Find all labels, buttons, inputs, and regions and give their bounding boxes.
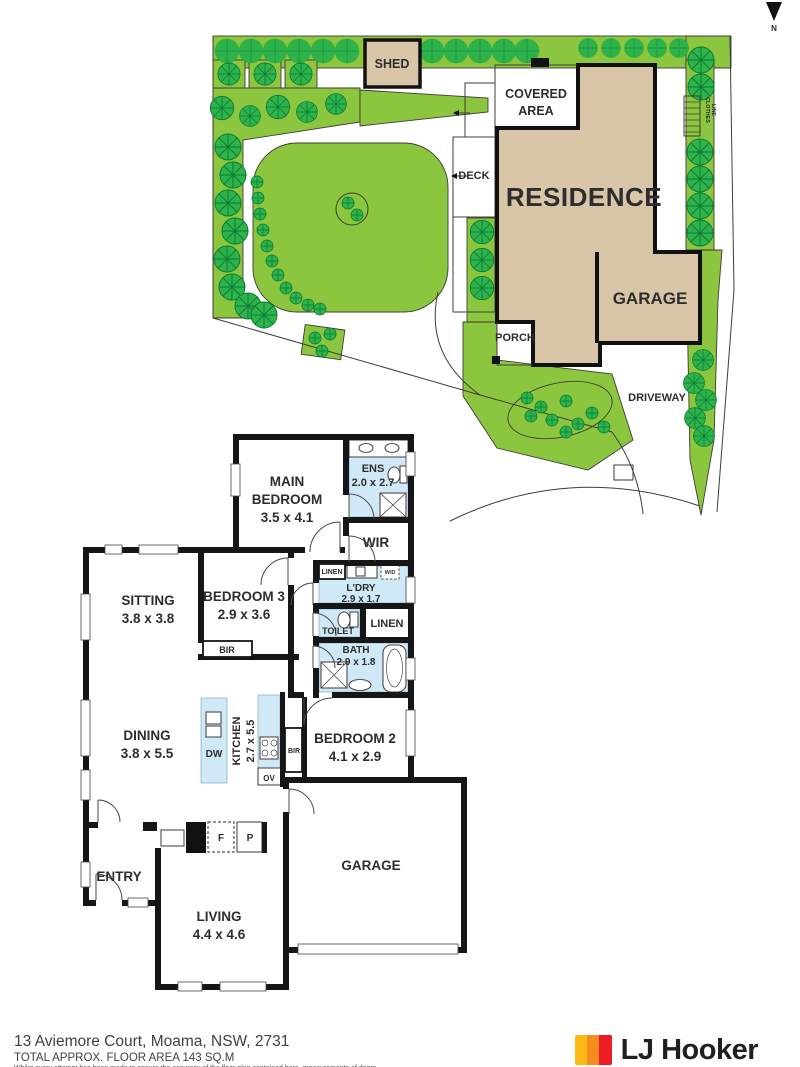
- north-label: N: [771, 24, 777, 33]
- property-address: 13 Aviemore Court, Moama, NSW, 2731: [14, 1033, 376, 1051]
- bath-dims: 2.9 x 1.8: [337, 657, 376, 668]
- residence-label: RESIDENCE: [506, 182, 662, 212]
- living-label: LIVING: [196, 909, 241, 924]
- bath-basin-icon: [349, 680, 371, 691]
- fireplace-icon: [186, 822, 206, 853]
- laundry-label: L'DRY: [346, 583, 376, 594]
- kitchen-sink-icon: [206, 712, 221, 724]
- bedroom2-dims: 4.1 x 2.9: [329, 749, 382, 764]
- covered-area-label-1: COVERED: [505, 87, 567, 101]
- footer: 13 Aviemore Court, Moama, NSW, 2731 TOTA…: [0, 1030, 800, 1067]
- clothes-line-label-2: LINE: [710, 104, 716, 117]
- main-bedroom-label-1: MAIN: [270, 474, 305, 489]
- brand-name: LJ Hooker: [621, 1035, 758, 1065]
- clothes-line-label-1: CLOTHES: [704, 97, 710, 123]
- entry-label: ENTRY: [96, 869, 141, 884]
- bedroom3-dims: 2.9 x 3.6: [218, 607, 271, 622]
- laundry-dims: 2.9 x 1.7: [342, 594, 381, 605]
- toilet-label: TOILET: [322, 626, 354, 636]
- driveway-label: DRIVEWAY: [628, 392, 686, 404]
- deck-label: DECK: [458, 170, 489, 182]
- dishwasher-label: DW: [206, 749, 223, 760]
- kitchen-dims: 2.7 x 5.5: [245, 720, 257, 763]
- covered-area-label-2: AREA: [518, 104, 553, 118]
- linen-hall-label: LINEN: [322, 569, 343, 576]
- kitchen-label: KITCHEN: [231, 717, 243, 766]
- cooktop-icon: [260, 737, 278, 759]
- ens-label: ENS: [362, 463, 385, 475]
- bir-bedroom3-label: BIR: [219, 645, 235, 655]
- wir-label: WIR: [363, 535, 389, 550]
- hall-cabinet: [161, 830, 184, 846]
- garage-label: GARAGE: [341, 858, 400, 873]
- dining-label: DINING: [123, 728, 170, 743]
- plan-canvas: N: [0, 0, 800, 1030]
- bedroom3-label: BEDROOM 3: [203, 589, 285, 604]
- shed-label: SHED: [375, 57, 410, 71]
- garage-door: [298, 944, 458, 954]
- site-garage-label: GARAGE: [613, 289, 688, 308]
- logo-stripes-icon: [575, 1035, 612, 1065]
- pantry-label: P: [247, 833, 254, 844]
- site-plan: CLOTHES LINE SHED COVERED AREA DECK RESI…: [210, 36, 734, 521]
- living-dims: 4.4 x 4.6: [193, 927, 246, 942]
- ens-shower-icon: [380, 493, 406, 517]
- fridge-label: F: [218, 833, 224, 844]
- floor-plan: MAIN BEDROOM 3.5 x 4.1 ENS 2.0 x 2.7 WIR…: [81, 434, 467, 991]
- bedroom2-label: BEDROOM 2: [314, 731, 396, 746]
- linen-label: LINEN: [371, 618, 404, 630]
- lj-hooker-logo: LJ Hooker: [575, 1035, 758, 1065]
- bathtub-icon: [383, 645, 406, 692]
- main-bedroom-dims: 3.5 x 4.1: [261, 510, 314, 525]
- oven-label: OV: [263, 774, 275, 783]
- floorplan-page: N: [0, 0, 800, 1067]
- porch-label: PORCH: [495, 332, 535, 344]
- north-arrow-icon: N: [766, 2, 782, 33]
- sitting-label: SITTING: [121, 593, 174, 608]
- ens-dims: 2.0 x 2.7: [352, 477, 395, 489]
- sitting-dims: 3.8 x 3.8: [122, 611, 175, 626]
- bath-label: BATH: [342, 645, 369, 656]
- footer-text: 13 Aviemore Court, Moama, NSW, 2731 TOTA…: [14, 1033, 376, 1067]
- washer-dryer-label: W/D: [385, 570, 396, 576]
- dining-dims: 3.8 x 5.5: [121, 746, 174, 761]
- main-bedroom-label-2: BEDROOM: [252, 492, 323, 507]
- bir-bedroom2-label: BIR: [288, 748, 300, 755]
- floor-area-note: TOTAL APPROX. FLOOR AREA 143 SQ.M: [14, 1051, 376, 1065]
